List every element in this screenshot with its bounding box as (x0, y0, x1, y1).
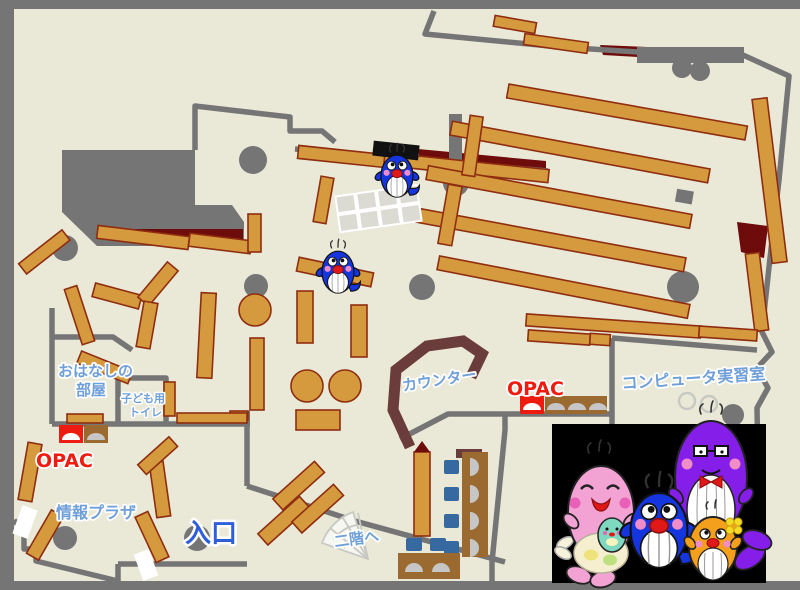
label-kids-toilet-line2: トイレ (129, 406, 162, 419)
label-storytelling-room-line1: おはなしの (58, 362, 133, 380)
label-kids-toilet-line1: 子ども用 (121, 392, 165, 405)
label-opac-left: OPAC (36, 450, 93, 472)
floor-map-canvas: おはなしの 部屋 子ども用 トイレ OPAC 情報プラザ 入口 二階へ カウンタ… (0, 0, 800, 590)
label-storytelling-room-line2: 部屋 (76, 381, 106, 399)
label-info-plaza: 情報プラザ (56, 503, 136, 522)
label-opac-right: OPAC (507, 378, 564, 400)
flower-icon (726, 518, 742, 534)
label-entrance: 入口 (185, 519, 237, 549)
mascot-photo (552, 401, 774, 590)
library-floor-map: おはなしの 部屋 子ども用 トイレ OPAC 情報プラザ 入口 二階へ カウンタ… (0, 0, 800, 590)
